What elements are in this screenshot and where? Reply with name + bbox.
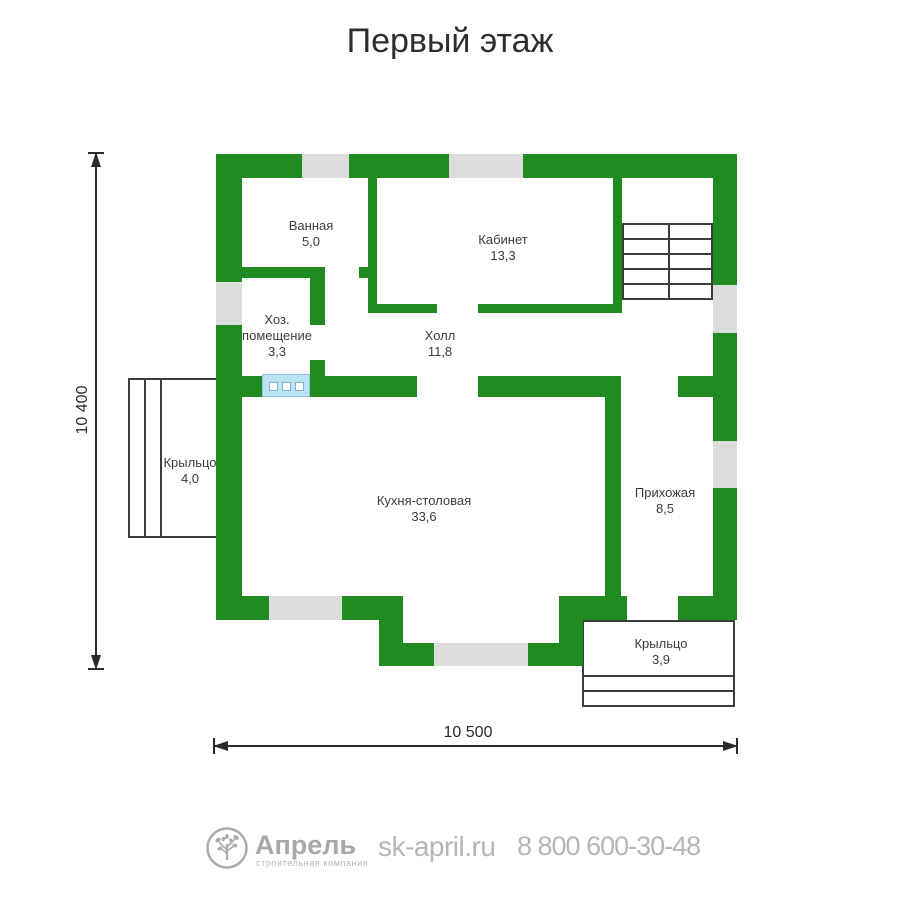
floor-plan-page: Первый этаж	[0, 0, 900, 900]
dimension-label-horizontal: 10 500	[444, 724, 493, 742]
company-brand-name: Апрель	[255, 830, 356, 861]
company-phone: 8 800 600-30-48	[517, 831, 700, 862]
dimension-lines	[0, 0, 900, 900]
company-logo-icon	[205, 826, 249, 870]
dimension-label-vertical: 10 400	[74, 386, 92, 435]
company-tagline: строительная компания	[256, 858, 368, 868]
company-website: sk-april.ru	[378, 831, 495, 863]
